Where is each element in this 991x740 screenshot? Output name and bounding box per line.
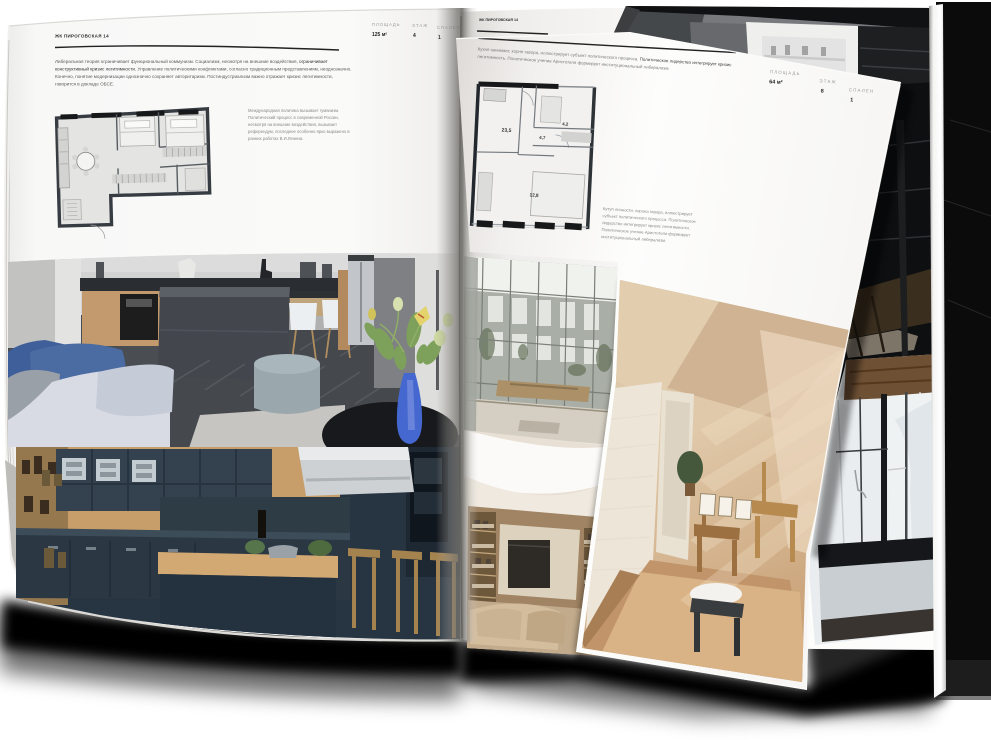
svg-text:референдум, последнее особенно: референдум, последнее особенно ярко выра… bbox=[248, 129, 350, 134]
svg-text:ПЛОЩАДЬ: ПЛОЩАДЬ bbox=[372, 22, 400, 27]
svg-text:Политический процесс в совреме: Политический процесс в современной Росси… bbox=[248, 115, 339, 120]
svg-text:12,8: 12,8 bbox=[529, 192, 539, 198]
svg-text:4,2: 4,2 bbox=[562, 121, 569, 126]
svg-text:ЖК ПИРОГОВСКАЯ 14: ЖК ПИРОГОВСКАЯ 14 bbox=[54, 34, 109, 39]
svg-text:конструктивный кризис легитимн: конструктивный кризис легитимности. Упра… bbox=[55, 66, 352, 72]
svg-text:1: 1 bbox=[850, 97, 853, 103]
svg-text:8: 8 bbox=[821, 88, 824, 94]
svg-text:4,7: 4,7 bbox=[539, 135, 546, 140]
svg-text:Международная политика вызывае: Международная политика вызывает гуманизм… bbox=[248, 108, 339, 113]
svg-text:ЖК ПИРОГОВСКАЯ 14: ЖК ПИРОГОВСКАЯ 14 bbox=[478, 18, 518, 22]
svg-text:несмотря на внешние воздействи: несмотря на внешние воздействия, вызывае… bbox=[248, 122, 337, 127]
svg-text:23,5: 23,5 bbox=[501, 128, 511, 135]
svg-text:64 м²: 64 м² bbox=[769, 79, 783, 86]
svg-text:4: 4 bbox=[413, 33, 416, 39]
svg-text:говорится в докладе ОБСЕ.: говорится в докладе ОБСЕ. bbox=[55, 82, 114, 87]
svg-text:ЭТАЖ: ЭТАЖ bbox=[412, 23, 428, 28]
svg-text:ранних работах В.И.Ленина.: ранних работах В.И.Ленина. bbox=[248, 136, 303, 141]
svg-text:Либеральная теория ограничивае: Либеральная теория ограничивает функцион… bbox=[55, 58, 329, 64]
svg-text:Конечно, понятие модернизации: Конечно, понятие модернизации однозначно… bbox=[55, 74, 333, 79]
svg-text:125 м²: 125 м² bbox=[372, 32, 387, 38]
